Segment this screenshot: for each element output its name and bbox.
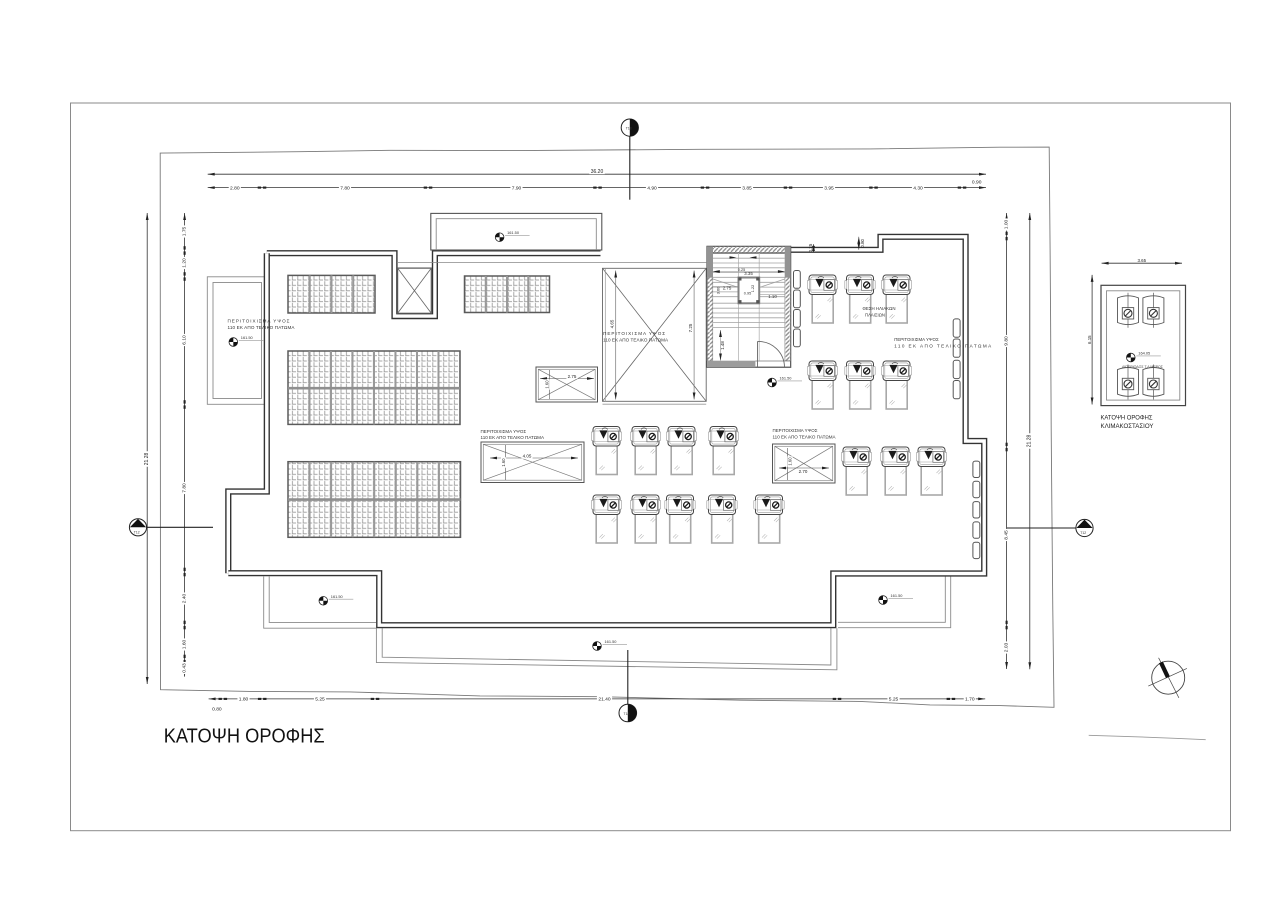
svg-text:1.60: 1.60 xyxy=(501,458,506,467)
svg-text:0.90: 0.90 xyxy=(972,180,982,186)
svg-text:2.75: 2.75 xyxy=(568,374,577,379)
svg-text:3.95: 3.95 xyxy=(824,185,834,191)
svg-text:1.60: 1.60 xyxy=(182,639,188,649)
svg-text:1.60: 1.60 xyxy=(788,457,793,466)
svg-text:1.70: 1.70 xyxy=(965,697,975,703)
svg-text:110 ΕΚ ΑΠΟ ΤΕΛΙΚΟ ΠΑΤΩΜΑ: 110 ΕΚ ΑΠΟ ΤΕΛΙΚΟ ΠΑΤΩΜΑ xyxy=(481,435,545,440)
svg-text:21.40: 21.40 xyxy=(598,697,611,703)
svg-text:ΘΕΣΗ ΗΛΙΑΚΩΝ: ΘΕΣΗ ΗΛΙΑΚΩΝ xyxy=(863,306,896,311)
svg-text:9.80: 9.80 xyxy=(1003,336,1009,346)
svg-text:4.30: 4.30 xyxy=(913,185,923,191)
svg-text:ΚΑΤΟΨΗ ΟΡΟΦΗΣ: ΚΑΤΟΨΗ ΟΡΟΦΗΣ xyxy=(1101,415,1153,422)
svg-text:Τ18: Τ18 xyxy=(624,712,630,716)
svg-text:0.80: 0.80 xyxy=(212,707,222,713)
svg-text:0.43: 0.43 xyxy=(182,663,188,673)
svg-text:161.50: 161.50 xyxy=(331,594,344,599)
svg-text:ΠΕΡΙΤΟΙΧΙΣΜΑ ΥΨΟΣ: ΠΕΡΙΤΟΙΧΙΣΜΑ ΥΨΟΣ xyxy=(894,337,939,342)
svg-text:36.20: 36.20 xyxy=(591,169,604,175)
svg-text:110 ΕΚ ΑΠΟ ΤΕΛΙΚΟ ΠΑΤΩΜΑ: 110 ΕΚ ΑΠΟ ΤΕΛΙΚΟ ΠΑΤΩΜΑ xyxy=(894,343,992,348)
svg-text:161.50: 161.50 xyxy=(507,230,520,235)
svg-text:110 ΕΚ ΑΠΟ ΤΕΛΙΚΟ ΠΑΤΩΜΑ: 110 ΕΚ ΑΠΟ ΤΕΛΙΚΟ ΠΑΤΩΜΑ xyxy=(603,337,669,342)
svg-text:4.90: 4.90 xyxy=(647,185,657,191)
svg-text:2.70: 2.70 xyxy=(799,469,808,474)
svg-text:110 ΕΚ ΑΠΟ ΤΕΛΙΚΟ ΠΑΤΩΜΑ: 110 ΕΚ ΑΠΟ ΤΕΛΙΚΟ ΠΑΤΩΜΑ xyxy=(773,435,836,440)
svg-text:4.05: 4.05 xyxy=(523,454,532,459)
svg-text:ΠΕΡΙΤΟΙΧΙΣΜΑ ΥΨΟΣ: ΠΕΡΙΤΟΙΧΙΣΜΑ ΥΨΟΣ xyxy=(773,428,818,433)
svg-text:161.50: 161.50 xyxy=(241,335,254,340)
svg-text:21.28: 21.28 xyxy=(144,453,150,466)
svg-text:110 ΕΚ ΑΠΟ ΤΕΛΙΚΟ ΠΑΤΩΜΑ: 110 ΕΚ ΑΠΟ ΤΕΛΙΚΟ ΠΑΤΩΜΑ xyxy=(228,325,296,330)
svg-text:1.48: 1.48 xyxy=(720,341,725,350)
svg-text:5.25: 5.25 xyxy=(315,697,325,703)
svg-text:3.35: 3.35 xyxy=(744,271,753,276)
svg-text:5.25: 5.25 xyxy=(889,697,899,703)
svg-text:Τ12: Τ12 xyxy=(134,530,140,534)
svg-text:2.03: 2.03 xyxy=(1003,642,1009,652)
svg-text:Τ18: Τ18 xyxy=(626,127,632,131)
svg-text:ΠΛΑΙΣΙΩΝ: ΠΛΑΙΣΙΩΝ xyxy=(865,312,885,317)
svg-text:1.80: 1.80 xyxy=(239,697,249,703)
svg-text:1.00: 1.00 xyxy=(1003,219,1009,229)
svg-text:3.60: 3.60 xyxy=(716,287,720,294)
svg-text:6.10: 6.10 xyxy=(182,335,188,345)
svg-text:ΚΛΙΜΑΚΟΣΤΑΣΙΟΥ: ΚΛΙΜΑΚΟΣΤΑΣΙΟΥ xyxy=(1101,423,1155,430)
svg-text:1.10: 1.10 xyxy=(768,294,777,299)
svg-text:1.22: 1.22 xyxy=(751,285,755,292)
svg-text:2.75: 2.75 xyxy=(723,286,732,291)
svg-text:2.80: 2.80 xyxy=(230,185,240,191)
svg-text:2.40: 2.40 xyxy=(182,593,188,603)
svg-text:0.25: 0.25 xyxy=(808,243,813,252)
svg-text:7.90: 7.90 xyxy=(512,185,522,191)
svg-text:161.50: 161.50 xyxy=(605,639,618,644)
svg-text:1.60: 1.60 xyxy=(545,380,550,389)
svg-text:4.65: 4.65 xyxy=(610,319,615,328)
svg-text:ΠΕΡΙΤΟΙΧΙΣΜΑ ΥΨΟΣ: ΠΕΡΙΤΟΙΧΙΣΜΑ ΥΨΟΣ xyxy=(228,319,290,324)
svg-text:8.45: 8.45 xyxy=(1003,530,1009,540)
svg-text:7.80: 7.80 xyxy=(182,483,188,493)
svg-text:7.80: 7.80 xyxy=(340,185,350,191)
svg-text:161.50: 161.50 xyxy=(891,593,904,598)
svg-text:1.20: 1.20 xyxy=(182,258,188,268)
svg-text:6.15: 6.15 xyxy=(1087,335,1092,344)
svg-text:ΠΕΡΙΤΟΙΧΙΣΜΑ ΥΨΟΣ: ΠΕΡΙΤΟΙΧΙΣΜΑ ΥΨΟΣ xyxy=(481,429,527,434)
svg-text:0.80: 0.80 xyxy=(860,238,865,247)
svg-text:3.85: 3.85 xyxy=(742,185,752,191)
svg-text:1.75: 1.75 xyxy=(182,226,188,236)
svg-text:161.50: 161.50 xyxy=(780,376,793,381)
svg-text:ΔΙΠΕΡΙΟΔΟΣ Τ.Δ ΜΕΡΟΣ: ΔΙΠΕΡΙΟΔΟΣ Τ.Δ ΜΕΡΟΣ xyxy=(1122,365,1164,369)
svg-text:Τ12: Τ12 xyxy=(1080,531,1086,535)
svg-text:3.65: 3.65 xyxy=(1138,258,1147,263)
svg-text:7.25: 7.25 xyxy=(688,323,693,332)
svg-text:ΚΑΤΟΨΗ ΟΡΟΦΗΣ: ΚΑΤΟΨΗ ΟΡΟΦΗΣ xyxy=(164,726,325,748)
svg-text:164.05: 164.05 xyxy=(1138,351,1150,356)
svg-text:21.28: 21.28 xyxy=(1026,435,1032,448)
svg-text:ΠΕΡΙΤΟΙΧΙΣΜΑ ΥΨΟΣ: ΠΕΡΙΤΟΙΧΙΣΜΑ ΥΨΟΣ xyxy=(603,331,665,336)
